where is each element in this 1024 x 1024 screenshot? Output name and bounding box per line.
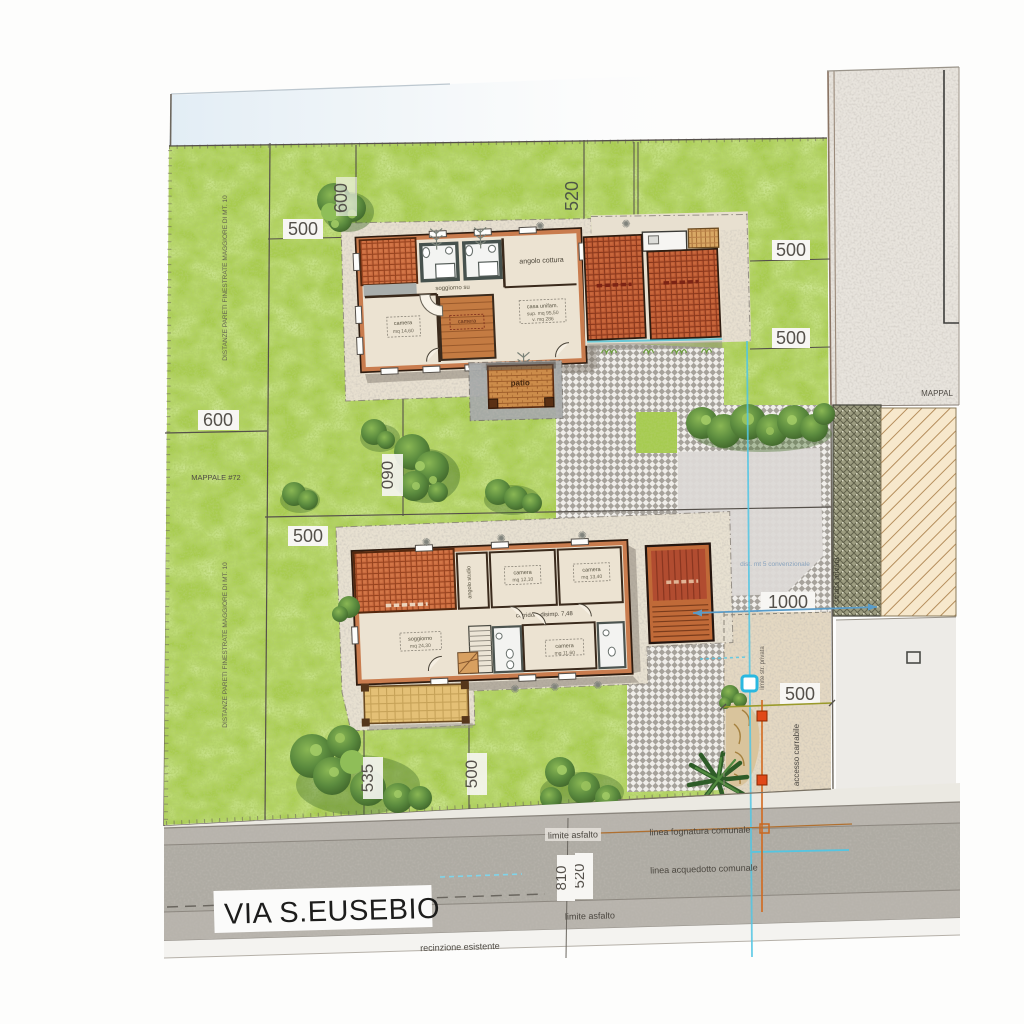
svg-text:500: 500 [462,760,481,788]
svg-text:DISTANZE PARETI FINESTRATE MAG: DISTANZE PARETI FINESTRATE MAGGIORE DI M… [222,562,229,728]
svg-text:strada privata: strada privata [832,556,841,602]
svg-text:limite str. privata: limite str. privata [760,646,766,690]
svg-text:535: 535 [358,764,377,792]
svg-text:✺: ✺ [497,533,507,545]
svg-text:camera: camera [458,318,478,325]
svg-text:mq 11,60: mq 11,60 [554,650,575,657]
svg-text:camera: camera [513,570,533,577]
svg-text:810: 810 [553,865,570,890]
svg-text:mq 12,10: mq 12,10 [512,577,533,584]
svg-text:MAPPAL: MAPPAL [921,389,953,398]
svg-text:camera: camera [582,567,602,574]
svg-text:✺: ✺ [510,684,520,696]
svg-text:500: 500 [776,328,806,348]
svg-text:DISTANZE PARETI FINESTRATE MAG: DISTANZE PARETI FINESTRATE MAGGIORE DI M… [222,195,229,361]
svg-text:accesso carrabile: accesso carrabile [792,723,801,786]
svg-text:mq 14,60: mq 14,60 [393,328,414,335]
svg-text:✺: ✺ [422,537,432,549]
svg-text:dist. mt 5 convenzionale: dist. mt 5 convenzionale [740,561,810,568]
svg-text:✺: ✺ [621,218,631,230]
svg-text:soggiorno: soggiorno [408,636,432,643]
svg-text:✺: ✺ [550,682,560,694]
svg-text:MAPPALE #72: MAPPALE #72 [191,473,240,482]
svg-text:600: 600 [203,410,233,430]
svg-text:camera: camera [555,643,575,650]
svg-text:mq 13,40: mq 13,40 [581,574,602,581]
svg-text:✺: ✺ [535,221,545,233]
svg-text:✺: ✺ [593,680,603,692]
svg-text:camera: camera [394,320,414,327]
svg-text:500: 500 [288,219,318,239]
svg-text:090: 090 [378,461,397,489]
svg-text:mq 24,30: mq 24,30 [410,643,431,650]
svg-text:500: 500 [293,526,323,546]
svg-text:limite asfalto: limite asfalto [565,910,615,921]
svg-text:600: 600 [331,183,351,213]
svg-text:VIA S.EUSEBIO: VIA S.EUSEBIO [224,893,441,931]
svg-text:patio: patio [511,378,530,388]
svg-text:limite asfalto: limite asfalto [548,829,598,840]
svg-text:v. mq 286: v. mq 286 [532,316,554,323]
svg-text:520: 520 [562,181,582,211]
svg-text:500: 500 [776,240,806,260]
svg-text:✺: ✺ [578,530,588,542]
svg-text:500: 500 [785,684,815,704]
